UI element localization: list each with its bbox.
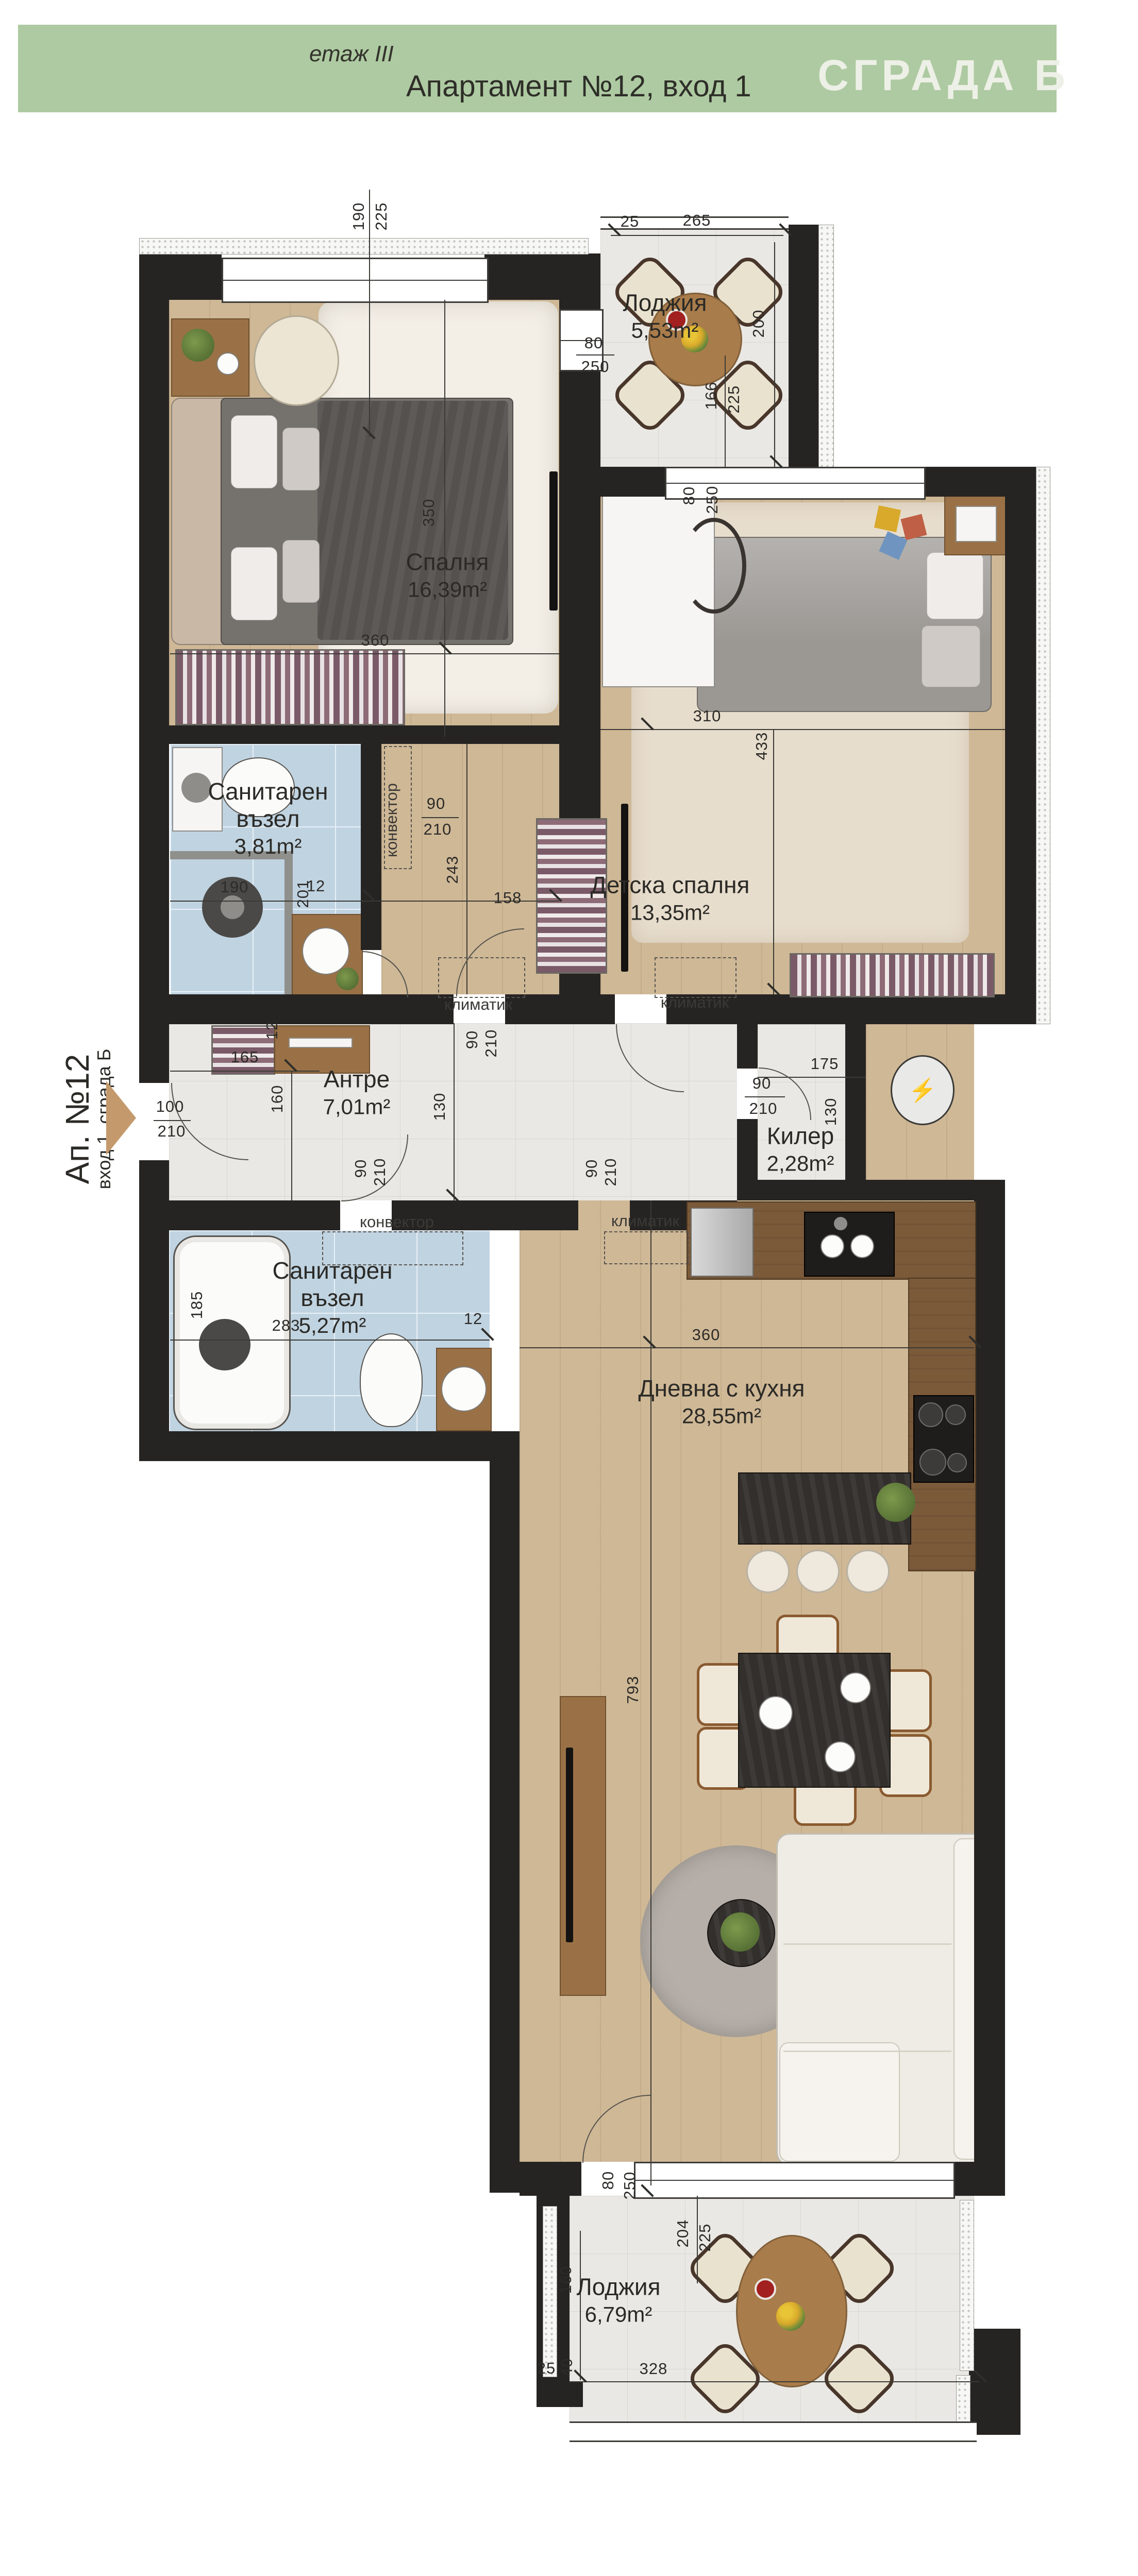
sofa-seam xyxy=(783,1943,951,1945)
room-name: Детска спалня xyxy=(559,871,781,899)
dimension-label: 250 xyxy=(621,2172,639,2200)
dimension-label: 210 xyxy=(601,1158,620,1187)
dimension-label: 433 xyxy=(752,732,771,760)
dimension-label: 225 xyxy=(372,202,391,231)
dimension-label: 12 xyxy=(464,1310,482,1328)
dimension-label: 210 xyxy=(371,1158,389,1187)
insulation-hatch xyxy=(1036,467,1050,1024)
hvac-label: климатик xyxy=(611,1212,679,1230)
sink xyxy=(302,927,349,975)
wall-segment xyxy=(139,253,169,1024)
wall-segment xyxy=(505,994,559,1024)
dimension-line xyxy=(650,1200,651,2185)
room-label: Лоджия5,53m² xyxy=(582,289,747,344)
dimension-line xyxy=(600,729,1005,730)
sofa-seam xyxy=(783,2050,951,2052)
dimension-label: 166 xyxy=(702,382,721,410)
loggia-railing xyxy=(570,2421,977,2442)
wall-segment xyxy=(490,1461,520,2193)
insulation-hatch xyxy=(139,238,589,255)
wall-segment xyxy=(974,1200,1005,2192)
window xyxy=(634,2162,955,2199)
dimension-line xyxy=(422,817,459,818)
room-area: 5,53m² xyxy=(582,316,747,345)
dimension-label: 158 xyxy=(494,889,522,907)
room-label: Спалня16,39m² xyxy=(365,548,530,603)
page-title: Апартамент №12, вход 1 xyxy=(406,69,751,104)
wardrobe xyxy=(790,953,995,997)
window xyxy=(222,258,489,303)
dimension-label: 90 xyxy=(582,1159,601,1178)
wall-segment xyxy=(951,2162,1005,2196)
room-label: Детска спалня13,35m² xyxy=(559,871,781,926)
plant xyxy=(721,1912,760,1952)
burner xyxy=(918,1402,943,1427)
room-label: Килер2,28m² xyxy=(723,1122,878,1177)
insulation-hatch xyxy=(818,225,834,468)
plate xyxy=(759,1696,793,1730)
bar-stool xyxy=(746,1550,790,1593)
coffee-cup xyxy=(755,2278,776,2300)
room-area: 3,81m² xyxy=(196,833,340,861)
armchair xyxy=(254,315,339,406)
dimension-label: 360 xyxy=(692,1326,721,1344)
wall-segment xyxy=(600,467,666,497)
dimension-label: 210 xyxy=(424,820,452,839)
dimension-line xyxy=(444,300,445,737)
entrance-arrow-icon xyxy=(106,1081,136,1155)
side-apartment-label: Ап. №12 xyxy=(58,1054,96,1184)
room-name: Санитарен възел xyxy=(196,778,340,833)
bed-pillow xyxy=(282,428,320,490)
dimension-line xyxy=(170,1340,490,1341)
flowers xyxy=(776,2302,805,2331)
dimension-label: 210 xyxy=(482,1029,500,1058)
room-area: 13,35m² xyxy=(559,899,781,927)
hvac-label: конвектор xyxy=(360,1213,434,1231)
faucet xyxy=(834,1217,847,1230)
dimension-line xyxy=(576,354,614,355)
wall-segment xyxy=(520,2162,581,2196)
wall-segment xyxy=(139,1024,169,1083)
room-name: Лоджия xyxy=(536,2273,701,2300)
room-area: 16,39m² xyxy=(365,575,530,604)
sink-basin xyxy=(850,1234,874,1258)
dimension-label: 12 xyxy=(307,877,325,895)
dimension-label: 265 xyxy=(683,211,711,230)
room-label: Дневна с кухня28,55m² xyxy=(582,1375,861,1430)
wall-segment xyxy=(169,725,559,744)
dimension-label: 793 xyxy=(624,1676,642,1704)
dimension-label: 360 xyxy=(361,631,390,650)
wall-segment xyxy=(1005,467,1036,1023)
hvac-unit-outline xyxy=(604,1231,689,1264)
bed-blanket xyxy=(317,401,508,640)
room-area: 2,28m² xyxy=(723,1149,878,1178)
dimension-label: 225 xyxy=(696,2224,714,2252)
water-heater: ⚡ xyxy=(891,1055,955,1125)
bed-pillow xyxy=(922,625,980,687)
floor-label: етаж III xyxy=(309,41,394,67)
room-area: 7,01m² xyxy=(274,1093,439,1121)
bed-headboard xyxy=(171,398,225,645)
dimension-line xyxy=(454,1023,455,1200)
tv xyxy=(566,1748,573,1942)
dimension-label: 250 xyxy=(581,358,610,376)
dimension-label: 204 xyxy=(674,2219,692,2248)
dimension-label: 90 xyxy=(752,1074,771,1093)
room-name: Спалня xyxy=(365,548,530,575)
book xyxy=(956,506,997,542)
wall-segment xyxy=(737,1180,1005,1200)
shower-head xyxy=(199,1319,250,1370)
dimension-label: 90 xyxy=(427,794,445,813)
sink-basin xyxy=(821,1234,844,1258)
burner xyxy=(945,1404,966,1425)
room-label: Антре7,01m² xyxy=(274,1065,439,1121)
dimension-label: 165 xyxy=(231,1048,259,1066)
dimension-label: 210 xyxy=(749,1099,778,1118)
dimension-label: 185 xyxy=(188,1291,206,1319)
tv xyxy=(549,471,558,611)
table-lamp xyxy=(216,352,239,375)
room-name: Санитарен възел xyxy=(258,1257,407,1312)
plate xyxy=(825,1741,856,1772)
dimension-line xyxy=(774,242,775,467)
wall-segment xyxy=(139,1431,520,1461)
shower-head-center xyxy=(221,895,244,919)
room-name: Антре xyxy=(274,1065,439,1093)
room-name: Лоджия xyxy=(582,289,747,316)
sink xyxy=(441,1366,487,1412)
room-area: 6,79m² xyxy=(536,2300,701,2329)
building-label: СГРАДА Б xyxy=(781,50,1069,100)
dimension-label: 225 xyxy=(725,385,743,414)
dimension-line xyxy=(611,235,783,236)
bed-pillow xyxy=(282,540,320,603)
insulation-hatch xyxy=(960,2200,974,2371)
dimension-label: 40 xyxy=(558,2358,576,2377)
dimension-line xyxy=(773,729,774,994)
dimension-line xyxy=(369,190,370,437)
dimension-line xyxy=(170,653,559,654)
toilet xyxy=(360,1333,423,1427)
hvac-unit-outline xyxy=(655,957,737,998)
wall-segment xyxy=(737,1024,758,1069)
nightstand xyxy=(171,318,249,397)
bed-pillow xyxy=(927,552,983,619)
kitchen-sink xyxy=(804,1212,895,1277)
bed-pillow xyxy=(231,415,277,488)
wall-segment xyxy=(491,1200,578,1230)
dimension-label: 12 xyxy=(263,1021,281,1040)
wardrobe xyxy=(175,649,405,725)
dimension-label: 310 xyxy=(693,707,722,725)
desk-chair xyxy=(681,518,746,614)
wall-segment xyxy=(789,225,818,467)
dimension-label: 250 xyxy=(703,486,722,514)
hvac-label: конвектор xyxy=(382,783,401,857)
cabinet-handle xyxy=(289,1038,353,1048)
dimension-line xyxy=(570,2381,979,2382)
plant xyxy=(181,329,214,362)
plant xyxy=(336,968,359,990)
room-area: 28,55m² xyxy=(582,1402,861,1430)
room-name: Килер xyxy=(723,1122,878,1149)
wall-segment xyxy=(139,1200,340,1230)
dimension-label: 175 xyxy=(811,1055,839,1073)
dimension-label: 190 xyxy=(349,202,368,231)
wall-segment xyxy=(559,994,615,1024)
dimension-label: 350 xyxy=(420,499,438,527)
dimension-label: 210 xyxy=(158,1122,186,1141)
fridge xyxy=(691,1208,754,1277)
dimension-label: 80 xyxy=(599,2171,617,2190)
room-label: Санитарен възел3,81m² xyxy=(196,778,340,860)
bar-stool xyxy=(846,1550,890,1593)
room-name: Дневна с кухня xyxy=(582,1375,861,1402)
toy-block xyxy=(874,505,901,532)
wall-segment xyxy=(361,744,381,950)
dimension-label: 130 xyxy=(822,1098,840,1126)
bar-stool xyxy=(796,1550,840,1593)
plate xyxy=(840,1672,871,1703)
dimension-label: 25 xyxy=(621,212,639,231)
floor-plan-page: СГРАДА Б етаж III Апартамент №12, вход 1… xyxy=(0,0,1138,2576)
hvac-label: климатик xyxy=(444,995,512,1014)
dimension-label: 190 xyxy=(221,878,249,896)
burner xyxy=(919,1449,946,1476)
hvac-label: климатик xyxy=(661,993,729,1012)
dimension-label: 100 xyxy=(156,1097,185,1116)
dimension-label: 200 xyxy=(749,310,768,338)
hvac-unit-outline xyxy=(438,957,525,998)
dimension-line xyxy=(520,1347,974,1348)
bed-pillow xyxy=(231,547,277,620)
dimension-label: 243 xyxy=(443,856,462,884)
dimension-label: 90 xyxy=(463,1030,481,1049)
dimension-label: 328 xyxy=(640,2360,668,2378)
room-label: Санитарен възел5,27m² xyxy=(258,1257,407,1340)
room-area: 5,27m² xyxy=(258,1312,407,1340)
dimension-label: 80 xyxy=(680,486,698,505)
wall-segment xyxy=(537,2381,583,2407)
dimension-label: 25 xyxy=(537,2359,556,2378)
plant xyxy=(876,1483,915,1522)
wall-segment xyxy=(169,994,454,1024)
sofa-chaise xyxy=(779,2042,900,2162)
burner xyxy=(947,1453,967,1472)
room-label: Лоджия6,79m² xyxy=(536,2273,701,2328)
lightning-icon: ⚡ xyxy=(909,1077,937,1104)
dimension-label: 90 xyxy=(352,1159,370,1178)
